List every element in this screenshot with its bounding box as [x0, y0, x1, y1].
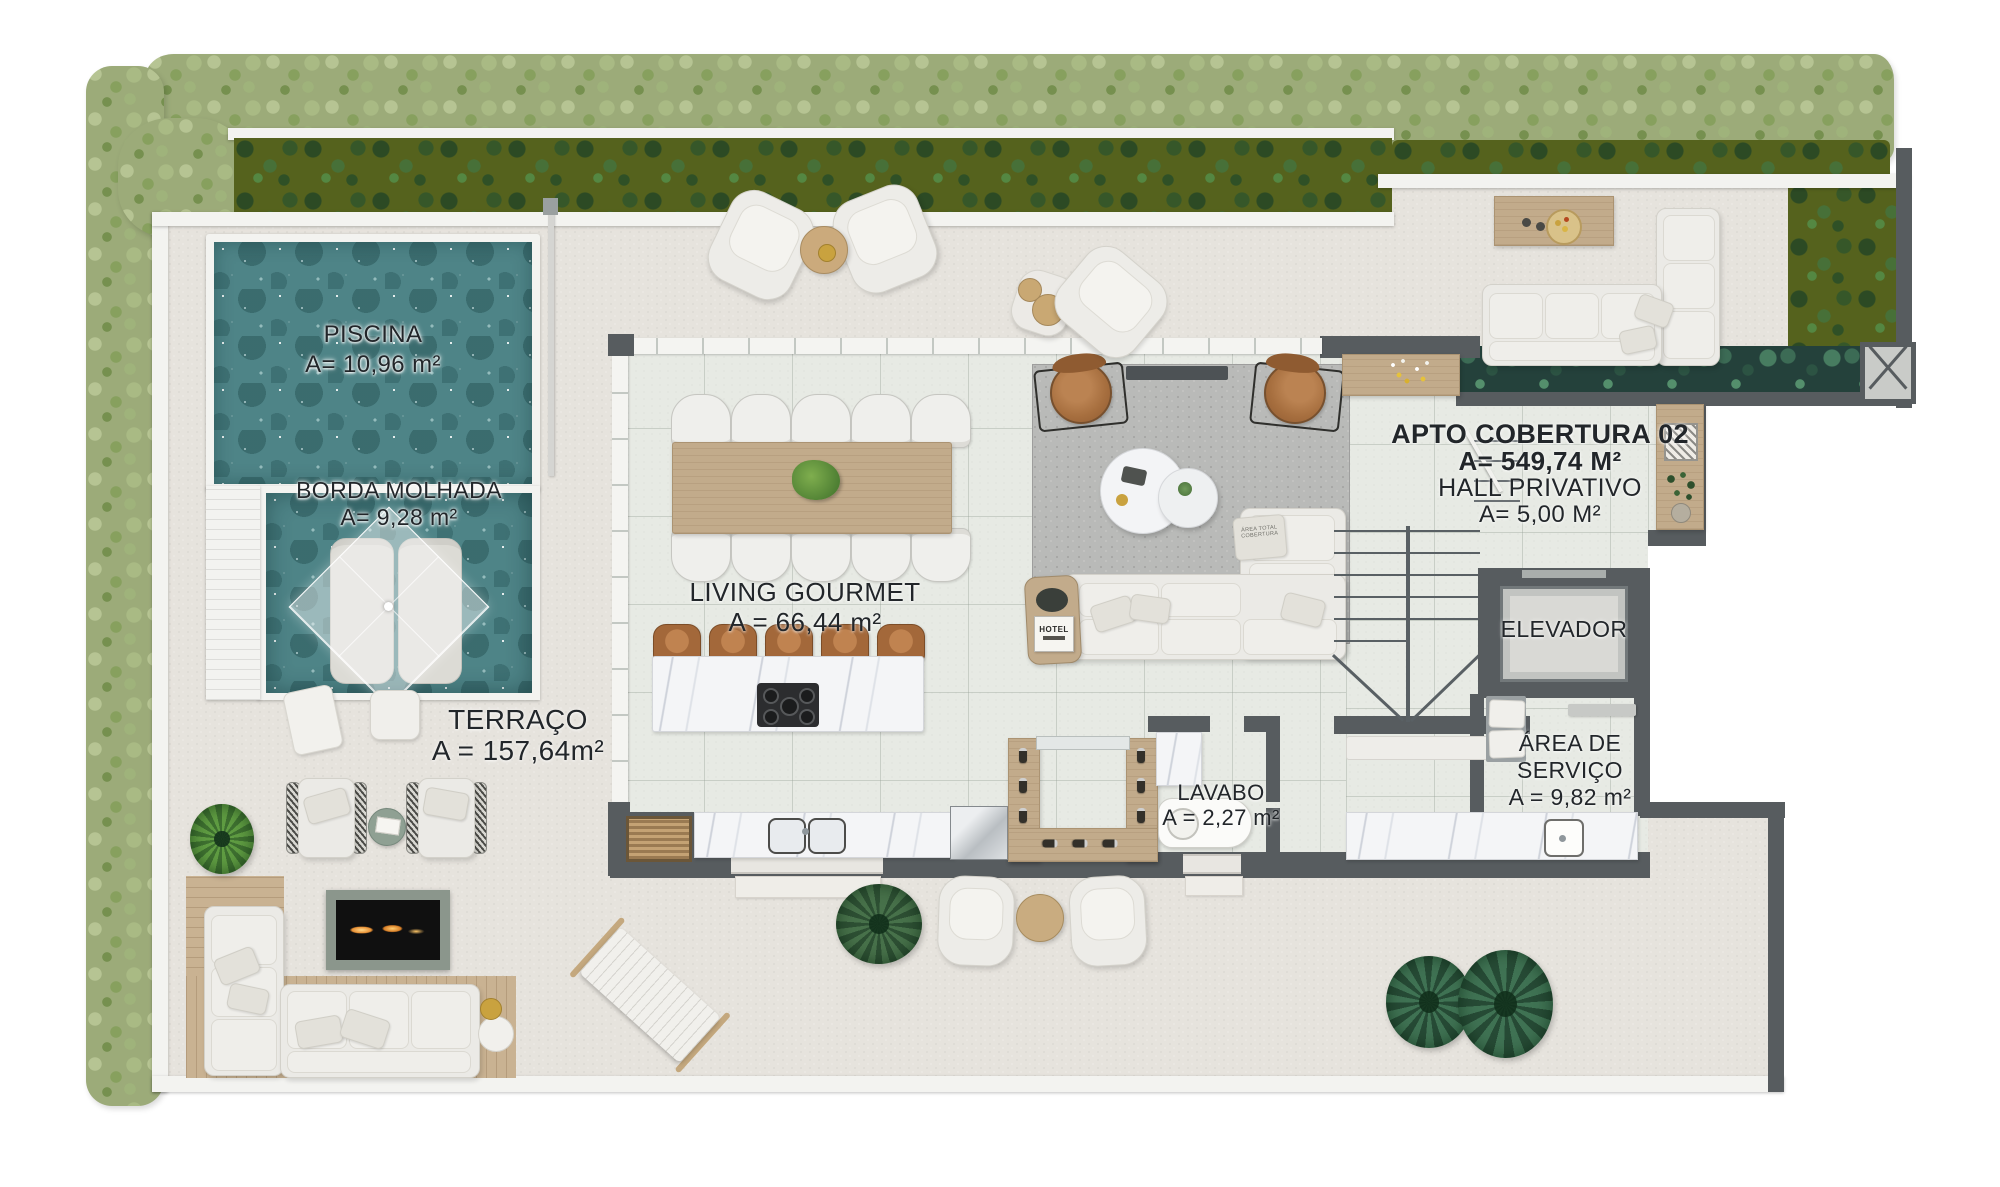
- dining-chair: [671, 528, 731, 582]
- terrace-chair: [936, 875, 1015, 968]
- flames-icon: [344, 916, 431, 945]
- pool-side-deck: [206, 486, 260, 700]
- fire-pit: [326, 890, 450, 970]
- burner-icon: [799, 688, 815, 704]
- label-apto-hall: APTO COBERTURA 02 A= 549,74 M² HALL PRIV…: [1390, 420, 1690, 528]
- hall-area: A= 5,00 M²: [1390, 502, 1690, 528]
- dining-chair: [851, 528, 911, 582]
- apto-name: APTO COBERTURA 02: [1390, 420, 1690, 448]
- shaft-symbol: [1860, 342, 1916, 404]
- outdoor-armchair: [406, 778, 486, 858]
- dining-chair: [911, 394, 971, 448]
- service-counter: [1346, 812, 1638, 860]
- table-decor-gold: [1116, 494, 1128, 506]
- palm-plant: [836, 884, 922, 964]
- wall-lavabo-top-left: [1148, 716, 1210, 732]
- terrace-side-table: [1016, 894, 1064, 942]
- wall-corner-cap: [608, 334, 634, 356]
- label-terraco: TERRAÇO A = 157,64m²: [388, 704, 648, 766]
- room-area: A = 66,44 m²: [650, 607, 960, 637]
- dining-chair: [791, 394, 851, 448]
- windbreak-cap: [543, 198, 558, 215]
- towel: [1489, 699, 1526, 728]
- wall-bottom-step: [1640, 802, 1785, 818]
- sink-unit: [768, 816, 844, 854]
- wall-right-lower: [1768, 806, 1784, 1092]
- cooktop: [757, 683, 819, 727]
- room-area: A = 9,82 m²: [1498, 784, 1642, 811]
- glass-wall-top: [612, 338, 1322, 354]
- label-borda-molhada: BORDA MOLHADA A= 9,28 m²: [262, 477, 536, 531]
- terrace-floor-bottom: [618, 874, 1782, 1084]
- burner-icon: [763, 688, 779, 704]
- wine-bottle-icon: [1137, 748, 1145, 763]
- fruit-tray: [1546, 209, 1582, 245]
- knob-icon: [1522, 218, 1531, 227]
- door-sill-lavabo: [1183, 854, 1241, 874]
- room-area: A = 2,27 m²: [1136, 805, 1306, 830]
- potted-plant: [190, 804, 254, 874]
- hall-name: HALL PRIVATIVO: [1390, 475, 1690, 502]
- terrace-floor-notch: [1645, 812, 1782, 878]
- knob-icon: [1536, 222, 1545, 231]
- palm-plant: [1458, 950, 1553, 1058]
- floor-plan: ÁREA TOTAL COBERTURA HOTEL: [0, 0, 2000, 1187]
- sofa-pillow: [1128, 593, 1171, 624]
- coffee-table-small: [1158, 468, 1218, 528]
- room-name: ELEVADOR: [1500, 616, 1628, 643]
- staircase: [1334, 526, 1480, 724]
- sink-bowl: [768, 818, 806, 854]
- dining-chair: [791, 528, 851, 582]
- parapet-bottom: [152, 1076, 1784, 1092]
- wine-bottle-icon: [1103, 840, 1118, 848]
- dining-chair: [851, 394, 911, 448]
- gold-tray: [480, 998, 502, 1020]
- elevator-door: [1522, 570, 1606, 578]
- balcony-sofa-vertical: [1656, 208, 1720, 366]
- wine-bottle-icon: [1019, 778, 1027, 793]
- dining-chair: [731, 394, 791, 448]
- room-name: TERRAÇO: [388, 704, 648, 735]
- sink-bowl: [808, 818, 846, 854]
- dining-chair: [671, 394, 731, 448]
- parapet-balcony: [1378, 174, 1910, 188]
- room-name: ÁREA DE SERVIÇO: [1498, 730, 1642, 784]
- hotel-book-title: HOTEL: [1035, 625, 1073, 634]
- room-area: A = 157,64m²: [388, 735, 648, 766]
- table-card: [375, 816, 401, 835]
- outdoor-armchair: [286, 778, 366, 858]
- table-plant: [792, 460, 840, 500]
- side-table-tray: [1036, 588, 1068, 612]
- room-name: PISCINA: [218, 320, 528, 350]
- wall-hall-step: [1648, 530, 1706, 546]
- balcony-sofa-horizontal: [1482, 284, 1662, 366]
- dishwasher: [950, 806, 1008, 860]
- doormat-lavabo: [1185, 876, 1243, 896]
- balcony-garden-right: [1788, 184, 1900, 350]
- room-area: A= 10,96 m²: [218, 350, 528, 380]
- wine-bottle-icon: [1073, 840, 1088, 848]
- gold-dish: [818, 244, 836, 262]
- room-name: LIVING GOURMET: [650, 577, 960, 607]
- sofa-pillow-printed: ÁREA TOTAL COBERTURA: [1232, 514, 1288, 561]
- bar-glass-counter: [1036, 736, 1130, 750]
- hotel-book: HOTEL: [1034, 616, 1074, 652]
- burner-icon: [780, 697, 799, 716]
- label-elevador: ELEVADOR: [1500, 616, 1628, 643]
- burner-icon: [763, 709, 779, 725]
- apto-area: A= 549,74 M²: [1390, 448, 1690, 475]
- balcony-console: [1494, 196, 1614, 246]
- umbrella-pole: [384, 602, 393, 611]
- deck-side-table: [478, 1016, 514, 1052]
- label-piscina: PISCINA A= 10,96 m²: [218, 320, 528, 380]
- tv-panel: [1126, 366, 1228, 380]
- room-name: LAVABO: [1136, 780, 1306, 805]
- room-name: BORDA MOLHADA: [262, 477, 536, 504]
- terrace-chair: [1068, 874, 1149, 968]
- faucet-icon: [1559, 835, 1566, 842]
- faucet-icon: [802, 828, 809, 835]
- label-area-servico: ÁREA DE SERVIÇO A = 9,82 m²: [1498, 730, 1642, 811]
- table-decor-sprig: [1178, 482, 1192, 496]
- label-living-gourmet: LIVING GOURMET A = 66,44 m²: [650, 577, 960, 637]
- room-area: A= 9,28 m²: [262, 504, 536, 531]
- glass-windbreak: [548, 204, 554, 476]
- wine-bottle-icon: [1043, 840, 1058, 848]
- lavabo-vanity-wall: [1156, 732, 1202, 786]
- dining-chair: [911, 528, 971, 582]
- burner-icon: [799, 709, 815, 725]
- flower-sprigs: [1387, 357, 1433, 391]
- hotel-book-bar: [1043, 636, 1065, 640]
- service-shelf: [1568, 704, 1636, 716]
- wine-bottle-icon: [1019, 808, 1027, 823]
- pillow-print-text: ÁREA TOTAL COBERTURA: [1241, 524, 1279, 539]
- label-lavabo: LAVABO A = 2,27 m²: [1136, 780, 1306, 830]
- planter-bed-top: [234, 138, 1392, 216]
- wine-bottle-icon: [1019, 748, 1027, 763]
- dining-chair: [731, 528, 791, 582]
- parapet-left: [152, 212, 168, 1092]
- stair-bench: [1346, 736, 1494, 760]
- grill-basket: [626, 816, 692, 862]
- kitchen-island: [652, 656, 924, 732]
- hall-console: [1342, 354, 1460, 396]
